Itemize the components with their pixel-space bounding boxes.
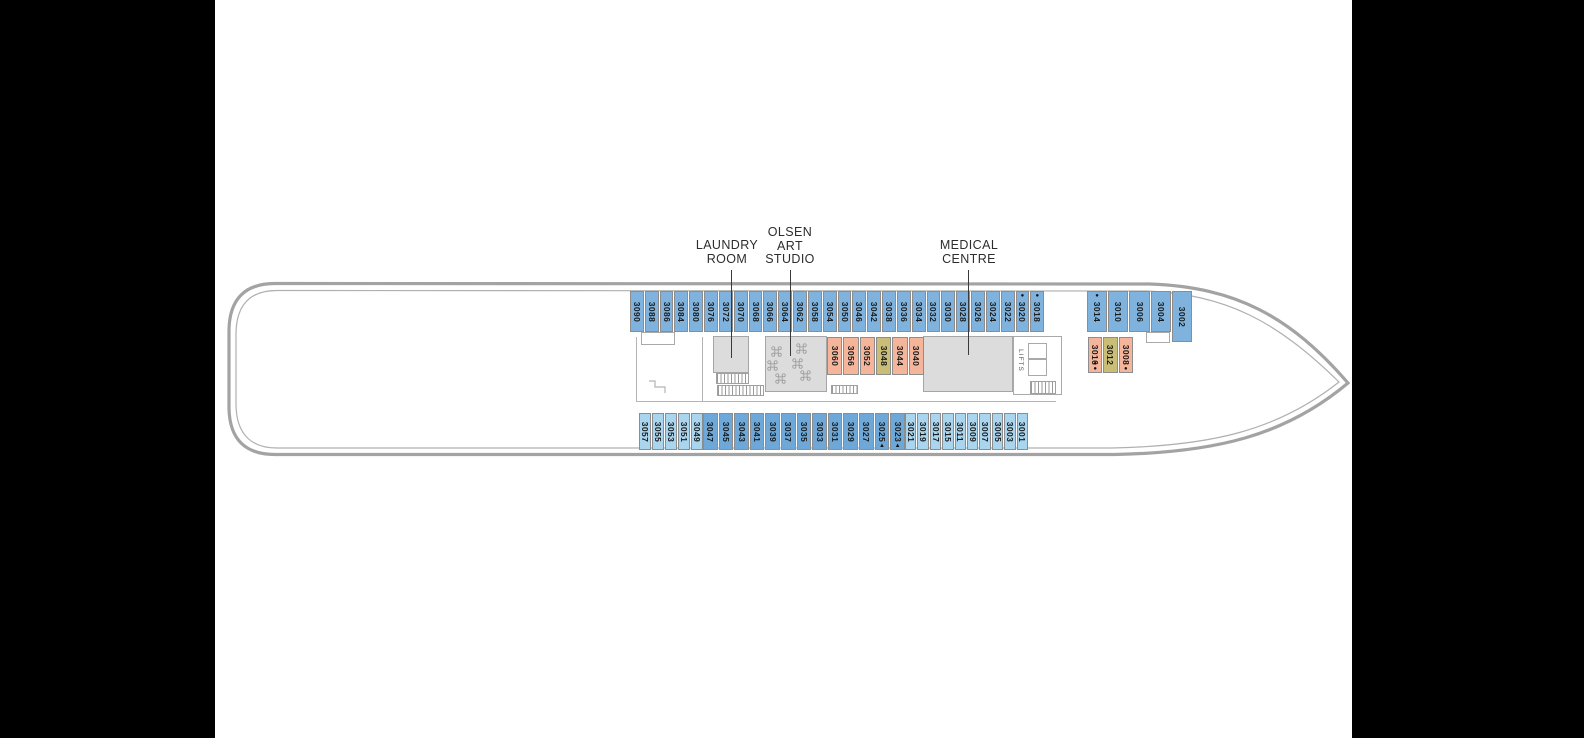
cabin-number: 3038 (884, 301, 894, 322)
cabin-3039[interactable]: 3039 (765, 413, 780, 450)
cabin-number: 3004 (1156, 301, 1166, 322)
cabin-3027[interactable]: 3027 (859, 413, 874, 450)
interior-wall-room-right (702, 337, 703, 402)
cabin-number: 3021 (906, 421, 916, 442)
cabin-number: 3086 (662, 301, 672, 322)
olsen-label-line2: ART (730, 240, 850, 254)
cabin-3043[interactable]: 3043 (734, 413, 749, 450)
cabin-3017[interactable]: 3017 (930, 413, 941, 450)
cabin-3030[interactable]: 3030 (941, 291, 955, 332)
cabin-number: 3030 (943, 301, 953, 322)
cabin-3080[interactable]: 3080 (689, 291, 703, 332)
cabin-3018[interactable]: 3018● (1030, 291, 1044, 332)
cabin-number: 3018 (1032, 301, 1042, 322)
table-chairs-icon (775, 371, 786, 389)
cabin-3021[interactable]: 3021 (905, 413, 916, 450)
cabin-3040[interactable]: 3040 (909, 337, 924, 375)
cabin-dot-marker: ●● (1092, 361, 1098, 371)
cabin-number: 3050 (840, 301, 850, 322)
cabin-3046[interactable]: 3046 (852, 291, 866, 332)
olsen-leader-line (790, 270, 791, 356)
cabin-number: 3056 (846, 346, 856, 367)
olsen-label-line1: OLSEN (730, 226, 850, 240)
interior-wall-left (636, 337, 637, 402)
cabin-3051[interactable]: 3051 (678, 413, 690, 450)
cabin-3035[interactable]: 3035 (797, 413, 812, 450)
cabin-3084[interactable]: 3084 (674, 291, 688, 332)
cabin-number: 3072 (721, 301, 731, 322)
cabin-3048[interactable]: 3048 (876, 337, 891, 375)
cabin-number: 3029 (846, 421, 856, 442)
cabin-number: 3003 (1005, 421, 1015, 442)
cabin-number: 3054 (825, 301, 835, 322)
cabin-3019[interactable]: 3019 (917, 413, 928, 450)
lifts-label: LIFTS (1014, 342, 1027, 378)
cabin-number: 3042 (869, 301, 879, 322)
medical-label-line1: MEDICAL (909, 239, 1029, 253)
cabin-3053[interactable]: 3053 (665, 413, 677, 450)
interior-corridor-wall (636, 401, 1056, 402)
cabin-3006[interactable]: 3006 (1129, 291, 1149, 332)
cabin-number: 3014 (1092, 301, 1102, 322)
cabin-dot-marker: ● (1123, 366, 1129, 371)
cabin-number: 3044 (895, 346, 905, 367)
cabin-number: 3035 (799, 421, 809, 442)
cabin-number: 3012 (1105, 345, 1115, 366)
cabin-3058[interactable]: 3058 (808, 291, 822, 332)
cabin-3038[interactable]: 3038 (882, 291, 896, 332)
cabin-3025[interactable]: 3025▲ (875, 413, 890, 450)
cabin-row-bottom-aft: 30573055305330513049 (639, 413, 703, 450)
cabin-number: 3032 (928, 301, 938, 322)
cabin-number: 3070 (736, 301, 746, 322)
cabin-number: 3040 (911, 346, 921, 367)
cabin-3076[interactable]: 3076 (704, 291, 718, 332)
cabin-number: 3010 (1113, 301, 1123, 322)
cabin-3032[interactable]: 3032 (927, 291, 941, 332)
cabin-number: 3031 (830, 421, 840, 442)
cabin-number: 3024 (988, 301, 998, 322)
cabin-row-top-aft: 3090308830863084308030763072307030683066… (630, 291, 1044, 332)
cabin-3052[interactable]: 3052 (860, 337, 875, 375)
cabin-3011[interactable]: 3011 (955, 413, 966, 450)
cabin-number: 3002 (1177, 306, 1187, 327)
cabin-number: 3047 (705, 421, 715, 442)
cabin-number: 3026 (973, 301, 983, 322)
cabin-number: 3068 (751, 301, 761, 322)
cabin-3042[interactable]: 3042 (867, 291, 881, 332)
cabin-number: 3058 (810, 301, 820, 322)
cabin-3066[interactable]: 3066 (763, 291, 777, 332)
cabin-3031[interactable]: 3031 (828, 413, 843, 450)
cabin-3014[interactable]: 3014● (1087, 291, 1107, 332)
cabin-3016[interactable]: 3016●● (1088, 337, 1102, 373)
cabin-3024[interactable]: 3024 (986, 291, 1000, 332)
cabin-3056[interactable]: 3056 (843, 337, 858, 375)
cabin-number: 3046 (854, 301, 864, 322)
cabin-number: 3009 (968, 421, 978, 442)
cabin-number: 3049 (692, 421, 702, 442)
cabin-number: 3051 (679, 421, 689, 442)
cabin-3045[interactable]: 3045 (719, 413, 734, 450)
medical-leader-line (968, 270, 969, 355)
cabin-number: 3064 (780, 301, 790, 322)
cabin-3010[interactable]: 3010 (1108, 291, 1128, 332)
cabin-number: 3017 (931, 421, 941, 442)
cabin-3015[interactable]: 3015 (942, 413, 953, 450)
cabin-3068[interactable]: 3068 (749, 291, 763, 332)
cabin-3041[interactable]: 3041 (750, 413, 765, 450)
cabin-3012[interactable]: 3012 (1103, 337, 1117, 373)
cabin-row-mid-aft: 306030563052304830443040 (827, 337, 924, 375)
stairs-laundry-upper (716, 373, 749, 384)
cabin-3020[interactable]: 3020● (1016, 291, 1030, 332)
cabin-3055[interactable]: 3055 (652, 413, 664, 450)
cabin-number: 3060 (830, 346, 840, 367)
cabin-number: 3039 (768, 421, 778, 442)
cabin-3050[interactable]: 3050 (838, 291, 852, 332)
cabin-number: 3019 (918, 421, 928, 442)
cabin-number: 3033 (815, 421, 825, 442)
cabin-number: 3001 (1017, 421, 1027, 442)
lift-2 (1028, 359, 1047, 376)
cabin-number: 3023 (893, 421, 903, 442)
cabin-triangle-marker: ▲ (895, 443, 901, 448)
cabin-3002[interactable]: 3002 (1172, 291, 1192, 342)
cabin-3004[interactable]: 3004 (1151, 291, 1171, 332)
cabin-3008[interactable]: 3008● (1119, 337, 1133, 373)
cabin-number: 3036 (899, 301, 909, 322)
stairs-laundry-lower (717, 385, 764, 396)
cabin-number: 3057 (640, 421, 650, 442)
cabin-number: 3090 (632, 301, 642, 322)
olsen-label-line3: STUDIO (730, 253, 850, 267)
cabin-3044[interactable]: 3044 (892, 337, 907, 375)
stairs-midship (831, 385, 858, 394)
cabin-number: 3006 (1135, 301, 1145, 322)
cabin-number: 3062 (795, 301, 805, 322)
laundry-leader-line (731, 270, 732, 358)
cabin-3062[interactable]: 3062 (793, 291, 807, 332)
cabin-3034[interactable]: 3034 (912, 291, 926, 332)
cabin-3049[interactable]: 3049 (691, 413, 703, 450)
vestibule-aft (641, 332, 675, 345)
medical-centre-label: MEDICAL CENTRE (909, 239, 1029, 266)
cabin-number: 3041 (752, 421, 762, 442)
cabin-number: 3066 (765, 301, 775, 322)
cabin-dot-marker: ● (1034, 293, 1040, 298)
cabin-number: 3005 (993, 421, 1003, 442)
deck-plan-canvas: LIFTS 3090308830863084308030763072307030… (215, 0, 1352, 738)
cabin-3026[interactable]: 3026 (971, 291, 985, 332)
cabin-number: 3088 (647, 301, 657, 322)
cabin-3054[interactable]: 3054 (823, 291, 837, 332)
lift-1 (1028, 343, 1047, 359)
cabin-number: 3027 (861, 421, 871, 442)
cabin-3029[interactable]: 3029 (843, 413, 858, 450)
cabin-number: 3084 (676, 301, 686, 322)
cabin-number: 3025 (877, 421, 887, 442)
cabin-3005[interactable]: 3005 (992, 413, 1003, 450)
medical-label-line2: CENTRE (909, 253, 1029, 267)
cabin-dot-marker: ● (1094, 293, 1100, 298)
cabin-number: 3007 (980, 421, 990, 442)
cabin-number: 3055 (653, 421, 663, 442)
cabin-number: 3037 (783, 421, 793, 442)
cabin-number: 3034 (914, 301, 924, 322)
cabin-number: 3076 (706, 301, 716, 322)
cabin-number: 3008 (1121, 345, 1131, 366)
cabin-3001[interactable]: 3001 (1017, 413, 1028, 450)
cabin-number: 3080 (691, 301, 701, 322)
stairs-lifts (1030, 381, 1056, 394)
lifts-label-text: LIFTS (1017, 349, 1024, 372)
cabin-number: 3011 (955, 421, 965, 441)
cabin-3007[interactable]: 3007 (979, 413, 990, 450)
cabin-number: 3028 (958, 301, 968, 322)
cabin-3047[interactable]: 3047 (703, 413, 718, 450)
table-chairs-icon (800, 368, 811, 386)
cabin-3037[interactable]: 3037 (781, 413, 796, 450)
cabin-number: 3048 (879, 346, 889, 367)
olsen-art-studio-label: OLSEN ART STUDIO (730, 226, 850, 267)
cabin-3033[interactable]: 3033 (812, 413, 827, 450)
cabin-3022[interactable]: 3022 (1001, 291, 1015, 332)
cabin-3003[interactable]: 3003 (1004, 413, 1015, 450)
cabin-3070[interactable]: 3070 (734, 291, 748, 332)
cabin-row-top-fwd: 3014●3010300630043002 (1087, 291, 1192, 342)
cabin-number: 3045 (721, 421, 731, 442)
cabin-3023[interactable]: 3023▲ (890, 413, 905, 450)
cabin-3009[interactable]: 3009 (967, 413, 978, 450)
cabin-3060[interactable]: 3060 (827, 337, 842, 375)
cabin-number: 3052 (862, 346, 872, 367)
cabin-3057[interactable]: 3057 (639, 413, 651, 450)
cabin-dot-marker: ● (1019, 293, 1025, 298)
cabin-3036[interactable]: 3036 (897, 291, 911, 332)
cabin-number: 3053 (666, 421, 676, 442)
cabin-triangle-marker: ▲ (879, 443, 885, 448)
cabin-3090[interactable]: 3090 (630, 291, 644, 332)
cabin-row-bottom-mid: 3047304530433041303930373035303330313029… (703, 413, 905, 450)
cabin-number: 3015 (943, 421, 953, 442)
cabin-3088[interactable]: 3088 (645, 291, 659, 332)
cabin-3086[interactable]: 3086 (660, 291, 674, 332)
cabin-number: 3043 (737, 421, 747, 442)
cabin-number: 3020 (1017, 301, 1027, 322)
cabin-number: 3022 (1003, 301, 1013, 322)
cabin-row-bottom-fwd: 3021301930173015301130093007300530033001 (905, 413, 1028, 450)
cabin-row-mid-fwd: 3016●●30123008● (1088, 337, 1133, 373)
